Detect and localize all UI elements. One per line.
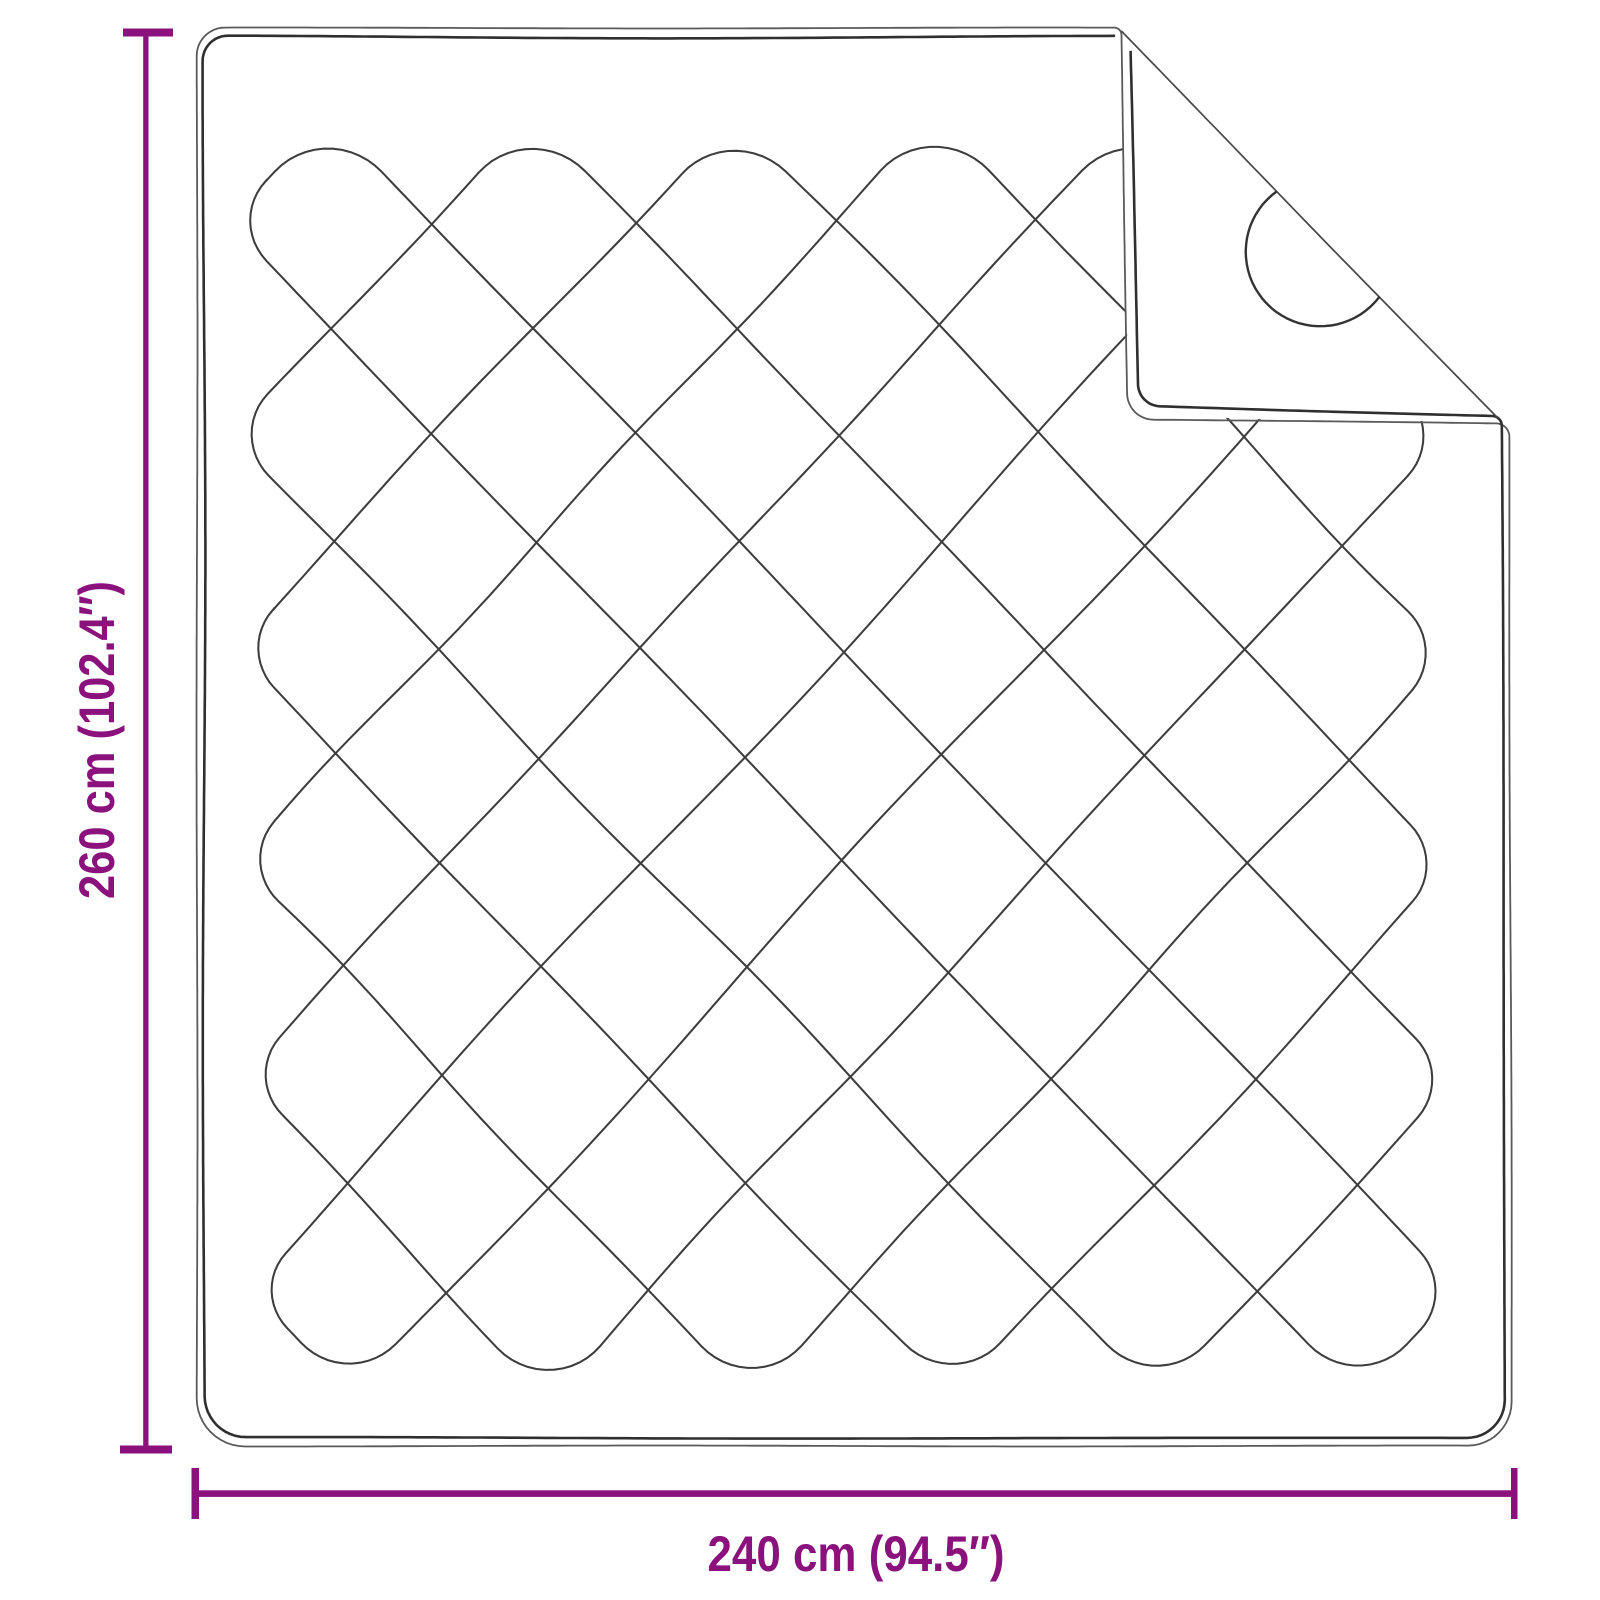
svg-text:240 cm (94.5″): 240 cm (94.5″) [708, 1526, 1005, 1582]
svg-text:260 cm (102.4″): 260 cm (102.4″) [69, 581, 125, 899]
